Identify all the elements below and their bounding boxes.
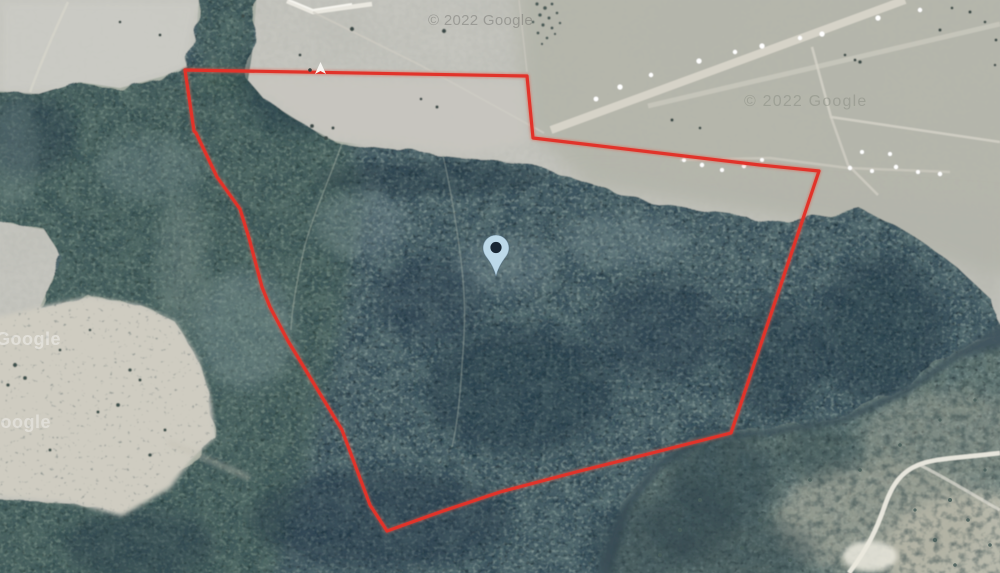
svg-text:© 2022 Google: © 2022 Google — [744, 93, 867, 110]
svg-text:Google: Google — [0, 412, 51, 432]
svg-text:© 2022 Google: © 2022 Google — [428, 12, 533, 29]
svg-text:Google: Google — [0, 329, 61, 349]
